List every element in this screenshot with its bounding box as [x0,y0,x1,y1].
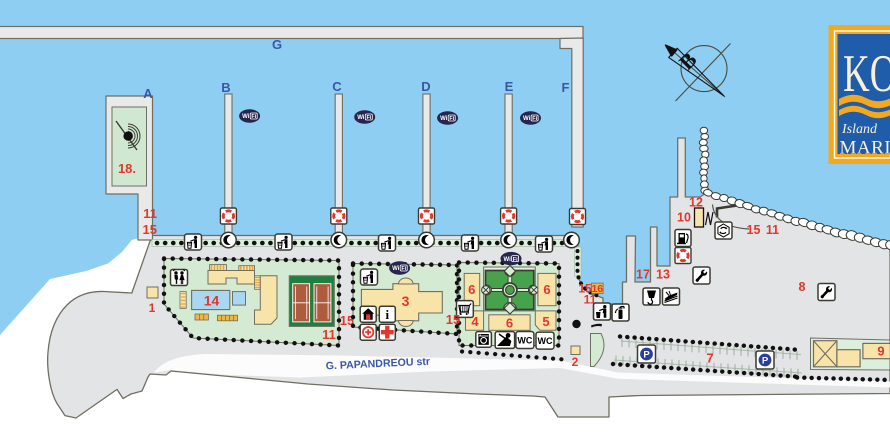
svg-text:A: A [143,86,153,101]
svg-text:9: 9 [877,344,884,359]
svg-text:17: 17 [636,268,650,282]
svg-text:13: 13 [656,268,670,282]
svg-text:12: 12 [689,196,703,210]
svg-text:8: 8 [799,280,806,294]
svg-text:6: 6 [468,282,475,297]
svg-text:G: G [272,37,282,52]
svg-text:Island: Island [841,122,878,137]
svg-text:15: 15 [446,312,460,327]
svg-text:5: 5 [542,314,549,329]
svg-text:F: F [562,80,570,95]
svg-text:11: 11 [143,206,157,221]
svg-text:18.: 18. [118,161,136,176]
svg-text:MARINA: MARINA [840,138,890,159]
svg-text:3: 3 [402,293,410,309]
svg-text:6: 6 [506,316,513,331]
svg-text:14: 14 [204,293,220,309]
svg-text:15: 15 [747,223,761,237]
svg-text:11: 11 [766,223,779,237]
svg-text:7: 7 [706,351,713,366]
svg-text:1: 1 [149,301,156,315]
svg-text:KOS: KOS [843,45,890,103]
svg-text:6: 6 [543,282,550,297]
svg-text:C: C [332,79,342,94]
svg-text:15: 15 [143,222,157,237]
svg-text:i: i [385,307,389,322]
svg-text:11: 11 [322,327,336,342]
svg-text:2: 2 [572,355,579,369]
svg-text:E: E [505,79,514,94]
svg-text:B: B [221,80,230,95]
svg-text:10: 10 [677,211,691,225]
svg-text:D: D [421,79,430,94]
